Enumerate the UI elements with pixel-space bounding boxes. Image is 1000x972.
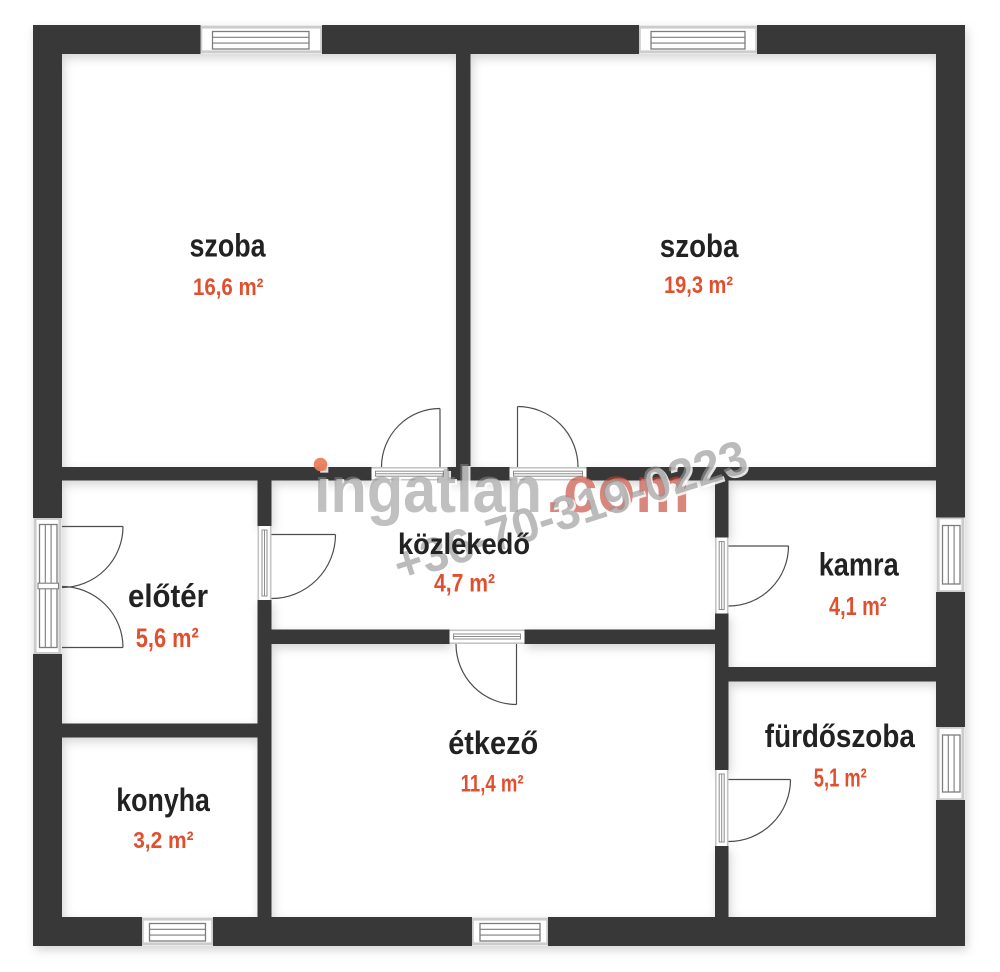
svg-text:kamra: kamra: [819, 547, 899, 583]
svg-text:16,6 m²: 16,6 m²: [193, 274, 264, 301]
svg-text:fürdőszoba: fürdőszoba: [765, 718, 915, 754]
svg-text:3,2 m²: 3,2 m²: [133, 827, 194, 853]
svg-text:szoba: szoba: [660, 228, 739, 264]
svg-text:közlekedő: közlekedő: [398, 528, 530, 561]
svg-text:előtér: előtér: [128, 578, 208, 614]
svg-text:szoba: szoba: [190, 228, 266, 264]
svg-text:étkező: étkező: [448, 725, 538, 761]
svg-text:19,3 m²: 19,3 m²: [664, 272, 733, 299]
svg-text:5,1 m²: 5,1 m²: [814, 763, 867, 793]
svg-text:11,4 m²: 11,4 m²: [461, 771, 524, 798]
svg-text:konyha: konyha: [116, 782, 210, 818]
svg-text:4,7 m²: 4,7 m²: [434, 570, 495, 598]
svg-text:4,1 m²: 4,1 m²: [829, 593, 887, 621]
svg-text:5,6 m²: 5,6 m²: [136, 623, 199, 653]
